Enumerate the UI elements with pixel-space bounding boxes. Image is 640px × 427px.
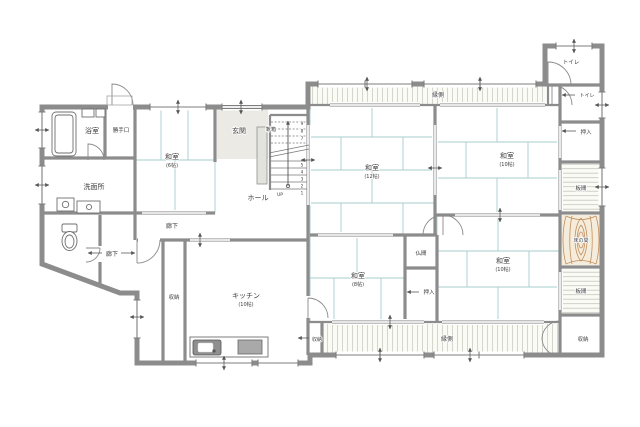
label-storage-engawa: 収納 [312, 336, 322, 343]
label-butsuma: 仏間 [415, 250, 427, 257]
backdoor-arc [112, 84, 133, 105]
stair-number-9: 9 [301, 121, 304, 126]
label-genkan: 玄関 [232, 126, 246, 135]
walls-storage-tall [163, 240, 185, 363]
corridor-door-arc [137, 240, 160, 263]
shoe-cabinet [257, 127, 267, 184]
label-kitchen-size: (10帖) [238, 301, 253, 308]
label-roka-west: 廊下 [106, 250, 118, 258]
bath-sink-icon [96, 109, 105, 117]
label-toilet-top: トイレ [563, 60, 580, 66]
kitchen-stove-icon [238, 340, 262, 354]
label-washitsu-se: 和室 [496, 256, 510, 265]
corridor-door-gap [138, 237, 160, 243]
label-storage-se: 収納 [577, 335, 589, 343]
stairs-break-line [269, 145, 309, 157]
stair-number-1: 1 [301, 191, 304, 196]
kitchen-counter [190, 337, 268, 357]
bath-counter-icon [82, 109, 94, 117]
label-senmenjo: 洗面所 [84, 182, 105, 191]
bathtub-icon [52, 112, 76, 156]
toilet-bowl-icon [62, 224, 77, 251]
label-itama-upper: 板間 [575, 184, 587, 192]
floor-plan-page: 浴室 勝手口 洗面所 和室 (6帖) 玄関 靴箱 ホール 廊下 廊下 和室 (1… [0, 0, 640, 427]
backdoor-step [107, 96, 132, 105]
label-washitsu-c-size: (12帖) [364, 173, 379, 180]
washing-machine-icon [57, 198, 74, 211]
engawa-top-floor [310, 86, 546, 104]
label-washitsu-c: 和室 [365, 163, 379, 172]
stair-number-7: 7 [301, 136, 304, 141]
label-engawa-top: 縁側 [432, 91, 444, 99]
tatami-lines-ne [435, 105, 560, 215]
stair-number-3: 3 [301, 177, 304, 182]
label-washitsu-nw-size: (6帖) [166, 162, 178, 169]
kitchen-sink-basin [198, 343, 213, 352]
stair-number-4: 4 [301, 170, 304, 175]
label-katteguchi: 勝手口 [113, 126, 130, 134]
stairs-up-label: UP [277, 192, 283, 198]
label-bath: 浴室 [85, 126, 99, 135]
label-oshiire-right: 押入 [580, 128, 592, 136]
label-storage-tall: 収納 [168, 293, 180, 301]
label-washitsu-se-size: (10帖) [495, 266, 510, 273]
label-itama-lower: 板間 [575, 287, 587, 295]
washbasin-icon [77, 201, 100, 213]
label-kitchen: キッチン [232, 292, 260, 300]
label-toilet-right: トイレ [579, 93, 594, 99]
label-kutsubako: 靴箱 [266, 126, 276, 133]
label-roka-main: 廊下 [166, 222, 178, 230]
label-washitsu-ne-size: (10帖) [499, 161, 514, 168]
label-engawa-bottom: 縁側 [441, 335, 453, 343]
label-washitsu-s: 和室 [351, 271, 365, 280]
label-tokonoma: 床の間 [573, 237, 588, 244]
stair-number-2: 2 [301, 184, 304, 189]
label-oshiire-center: 押入 [423, 288, 435, 296]
label-washitsu-s-size: (8帖) [352, 281, 364, 288]
stair-number-8: 8 [301, 129, 304, 134]
label-washitsu-ne: 和室 [500, 151, 514, 160]
label-washitsu-nw: 和室 [165, 152, 179, 161]
walls-butsuma-oshiire [405, 235, 437, 322]
floor-plan-canvas: 浴室 勝手口 洗面所 和室 (6帖) 玄関 靴箱 ホール 廊下 廊下 和室 (1… [0, 0, 640, 427]
stair-number-5: 5 [301, 163, 304, 168]
toilet-left-door-arc [86, 248, 100, 262]
kitchen-faucet-icon [212, 349, 215, 352]
label-hall: ホール [248, 194, 269, 202]
